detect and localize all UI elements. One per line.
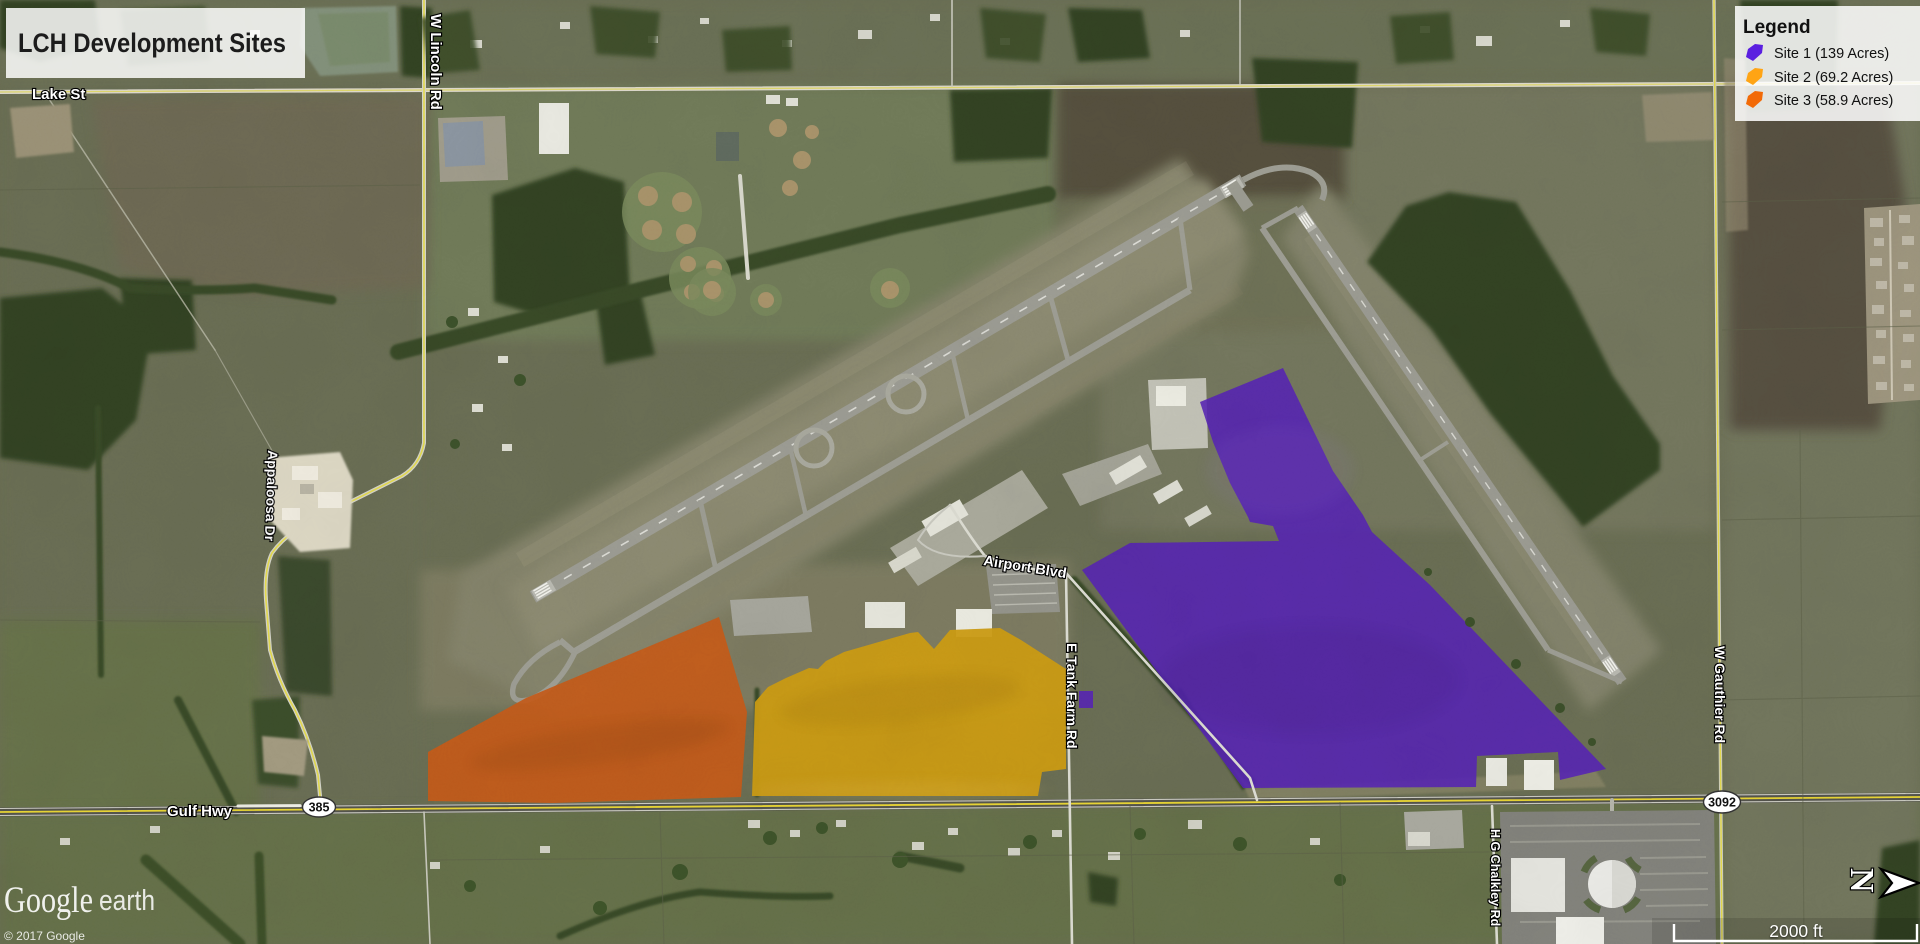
svg-text:Site 1 (139 Acres): Site 1 (139 Acres) <box>1774 46 1889 62</box>
svg-text:Legend: Legend <box>1743 17 1811 38</box>
svg-text:Gulf Hwy: Gulf Hwy <box>167 803 233 820</box>
svg-text:Google: Google <box>4 880 93 921</box>
svg-text:E Tank Farm Rd: E Tank Farm Rd <box>1064 643 1080 749</box>
svg-text:Lake St: Lake St <box>32 86 85 103</box>
svg-text:LCH Development Sites: LCH Development Sites <box>18 28 286 58</box>
svg-text:W Gauthier Rd: W Gauthier Rd <box>1712 646 1728 743</box>
svg-text:Appaloosa Dr: Appaloosa Dr <box>262 450 281 542</box>
svg-text:Site 3 (58.9 Acres): Site 3 (58.9 Acres) <box>1774 93 1893 109</box>
svg-text:earth: earth <box>99 885 155 917</box>
svg-text:Site 2 (69.2 Acres): Site 2 (69.2 Acres) <box>1774 70 1893 86</box>
svg-text:2000 ft: 2000 ft <box>1769 921 1823 941</box>
svg-text:3092: 3092 <box>1708 796 1736 810</box>
svg-text:H G Chalkley Rd: H G Chalkley Rd <box>1488 829 1502 926</box>
svg-text:W Lincoln Rd: W Lincoln Rd <box>427 14 444 110</box>
svg-text:385: 385 <box>309 801 330 815</box>
svg-text:© 2017 Google: © 2017 Google <box>4 929 85 943</box>
svg-text:N: N <box>1843 868 1880 893</box>
